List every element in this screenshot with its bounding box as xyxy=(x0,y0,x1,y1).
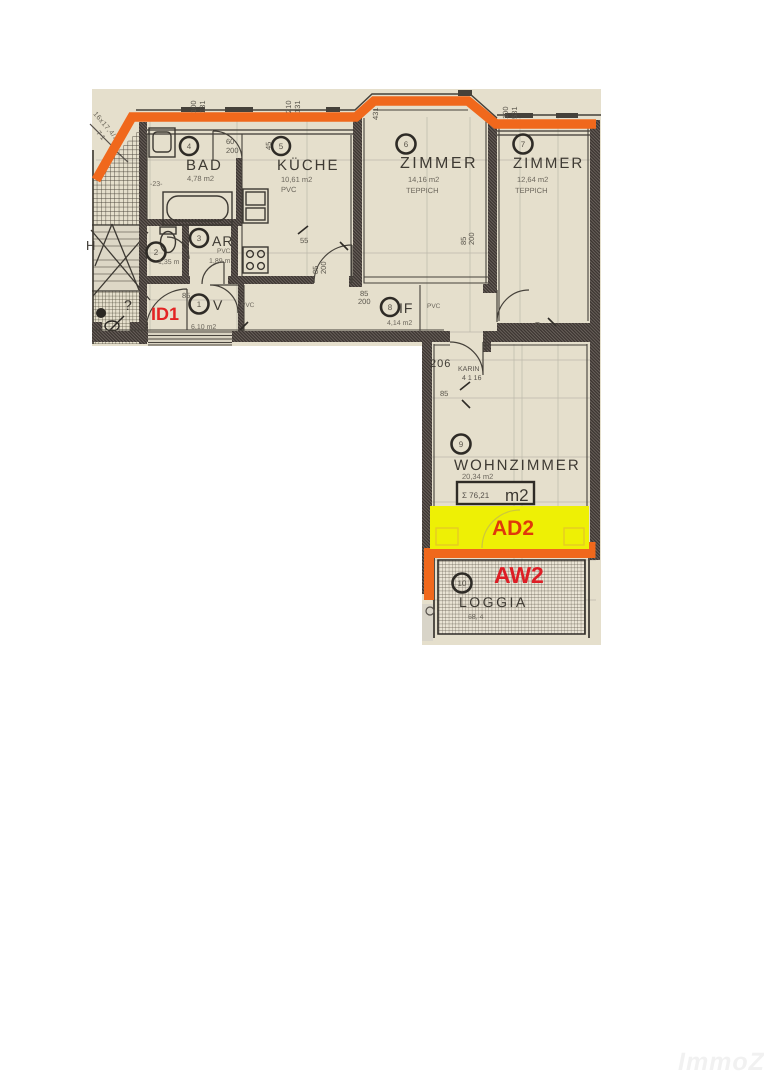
svg-text:85: 85 xyxy=(440,389,448,398)
svg-text:LOGGIA: LOGGIA xyxy=(459,594,528,610)
svg-text:206: 206 xyxy=(430,358,451,370)
svg-text:45: 45 xyxy=(264,142,273,150)
svg-text:8: 8 xyxy=(388,303,393,312)
svg-text:ZIMMER: ZIMMER xyxy=(513,155,584,172)
svg-text:1,35 m: 1,35 m xyxy=(158,259,180,266)
svg-text:ZIMMER: ZIMMER xyxy=(400,155,478,172)
svg-text:PVC: PVC xyxy=(427,303,441,310)
svg-text:2: 2 xyxy=(154,248,159,257)
svg-text:20,34 m2: 20,34 m2 xyxy=(462,472,493,481)
svg-text:100: 100 xyxy=(501,106,510,119)
svg-text:200: 200 xyxy=(467,232,476,245)
svg-text:ImmoZ: ImmoZ xyxy=(678,1048,764,1076)
svg-text:AD2: AD2 xyxy=(492,517,534,540)
svg-text:431: 431 xyxy=(371,107,380,120)
svg-text:BAD: BAD xyxy=(186,157,223,174)
svg-text:200: 200 xyxy=(226,146,239,155)
svg-text:85: 85 xyxy=(182,291,190,300)
svg-text:10,61 m2: 10,61 m2 xyxy=(281,175,312,184)
svg-text:68, 4: 68, 4 xyxy=(468,614,484,621)
svg-text:60: 60 xyxy=(226,137,234,146)
svg-text:9: 9 xyxy=(459,440,464,449)
svg-text:KARIN: KARIN xyxy=(458,366,479,373)
svg-text:PVC: PVC xyxy=(217,248,231,255)
svg-text:KÜCHE: KÜCHE xyxy=(277,157,340,174)
svg-text:m2: m2 xyxy=(505,486,529,505)
svg-text:AR: AR xyxy=(212,233,233,249)
svg-text:PVC: PVC xyxy=(241,302,255,309)
svg-text:TEPPICH: TEPPICH xyxy=(515,186,548,195)
svg-text:5: 5 xyxy=(279,142,284,151)
svg-text:PVC: PVC xyxy=(281,185,297,194)
svg-text:531: 531 xyxy=(510,106,519,119)
svg-text:4 1 16: 4 1 16 xyxy=(462,375,482,382)
svg-text:200: 200 xyxy=(319,261,328,274)
svg-text:210: 210 xyxy=(284,100,293,113)
svg-text:V: V xyxy=(213,297,223,313)
svg-text:4,14 m2: 4,14 m2 xyxy=(387,320,412,327)
svg-text:Σ 76,21: Σ 76,21 xyxy=(462,491,490,500)
svg-text:4: 4 xyxy=(187,142,192,151)
svg-text:131: 131 xyxy=(293,100,302,113)
svg-text:60: 60 xyxy=(533,322,542,330)
svg-text:1: 1 xyxy=(197,300,202,309)
svg-text:-23-: -23- xyxy=(150,181,163,188)
svg-text:131: 131 xyxy=(198,100,207,113)
svg-text:3: 3 xyxy=(197,234,202,243)
svg-text:10: 10 xyxy=(458,579,467,588)
svg-text:IF: IF xyxy=(399,300,413,316)
svg-text:TEPPICH: TEPPICH xyxy=(406,186,439,195)
svg-text:100: 100 xyxy=(189,100,198,113)
svg-text:14,16 m2: 14,16 m2 xyxy=(408,175,439,184)
svg-text:6,10 m2: 6,10 m2 xyxy=(191,324,216,331)
svg-text:1,89 m: 1,89 m xyxy=(209,258,231,265)
svg-text:H: H xyxy=(86,238,95,253)
svg-text:12,64 m2: 12,64 m2 xyxy=(517,175,548,184)
svg-text:?: ? xyxy=(124,297,132,313)
svg-text:ID1: ID1 xyxy=(151,304,179,324)
svg-text:6: 6 xyxy=(404,140,409,149)
svg-text:55: 55 xyxy=(300,236,308,245)
svg-text:200: 200 xyxy=(358,297,371,306)
svg-text:4,78 m2: 4,78 m2 xyxy=(187,174,214,183)
svg-text:AW2: AW2 xyxy=(494,562,544,588)
svg-text:7: 7 xyxy=(521,140,526,149)
